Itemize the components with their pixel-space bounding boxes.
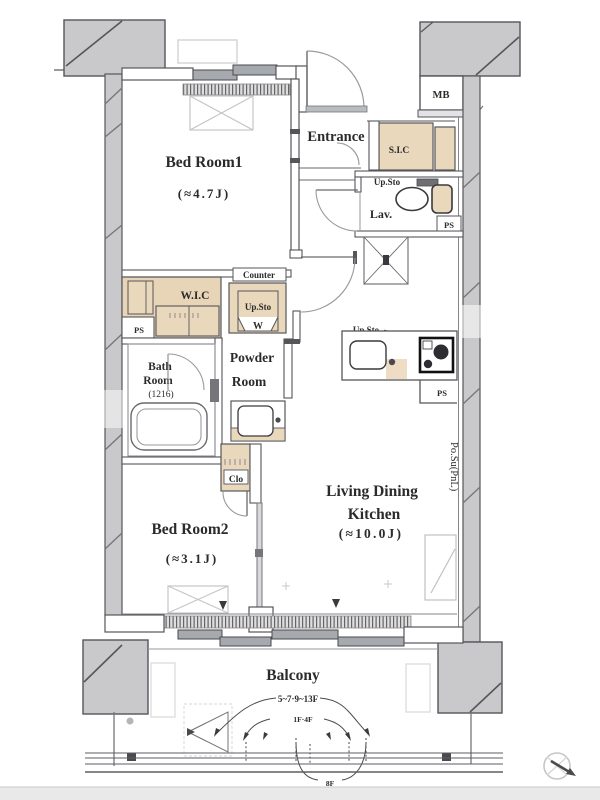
svg-text:Po.Su(PnL): Po.Su(PnL): [448, 442, 459, 492]
svg-text:(1216): (1216): [148, 389, 173, 400]
svg-text:Powder: Powder: [230, 350, 274, 365]
svg-text:Living Dining: Living Dining: [326, 483, 418, 500]
svg-text:Clo: Clo: [229, 475, 244, 485]
svg-text:Balcony: Balcony: [266, 667, 320, 684]
svg-text:Entrance: Entrance: [307, 129, 365, 145]
svg-text:Room: Room: [232, 374, 267, 389]
svg-text:MB: MB: [433, 90, 450, 101]
svg-text:1F·4F: 1F·4F: [293, 715, 313, 724]
svg-text:W.I.C: W.I.C: [181, 290, 210, 302]
svg-text:(≈10.0J): (≈10.0J): [339, 526, 403, 541]
svg-text:Counter: Counter: [243, 270, 275, 280]
svg-text:S.I.C: S.I.C: [389, 146, 410, 156]
svg-text:Bed Room1: Bed Room1: [165, 154, 242, 171]
svg-text:Bed Room2: Bed Room2: [151, 521, 228, 538]
svg-text:Bath: Bath: [148, 361, 172, 373]
svg-text:Up.Sto: Up.Sto: [245, 302, 272, 312]
svg-text:Up.Sto: Up.Sto: [374, 177, 401, 187]
svg-text:8F: 8F: [326, 779, 335, 788]
svg-text:Kitchen: Kitchen: [348, 506, 401, 523]
svg-text:PS: PS: [437, 388, 447, 398]
svg-text:PS: PS: [134, 325, 144, 335]
svg-text:(≈3.1J): (≈3.1J): [166, 551, 219, 566]
svg-text:W: W: [253, 321, 263, 332]
svg-text:Lav.: Lav.: [370, 207, 392, 221]
svg-text:5~7·9~13F: 5~7·9~13F: [278, 694, 319, 704]
svg-text:Room: Room: [143, 375, 173, 387]
svg-text:(≈4.7J): (≈4.7J): [178, 186, 231, 201]
svg-text:PS: PS: [444, 220, 454, 230]
